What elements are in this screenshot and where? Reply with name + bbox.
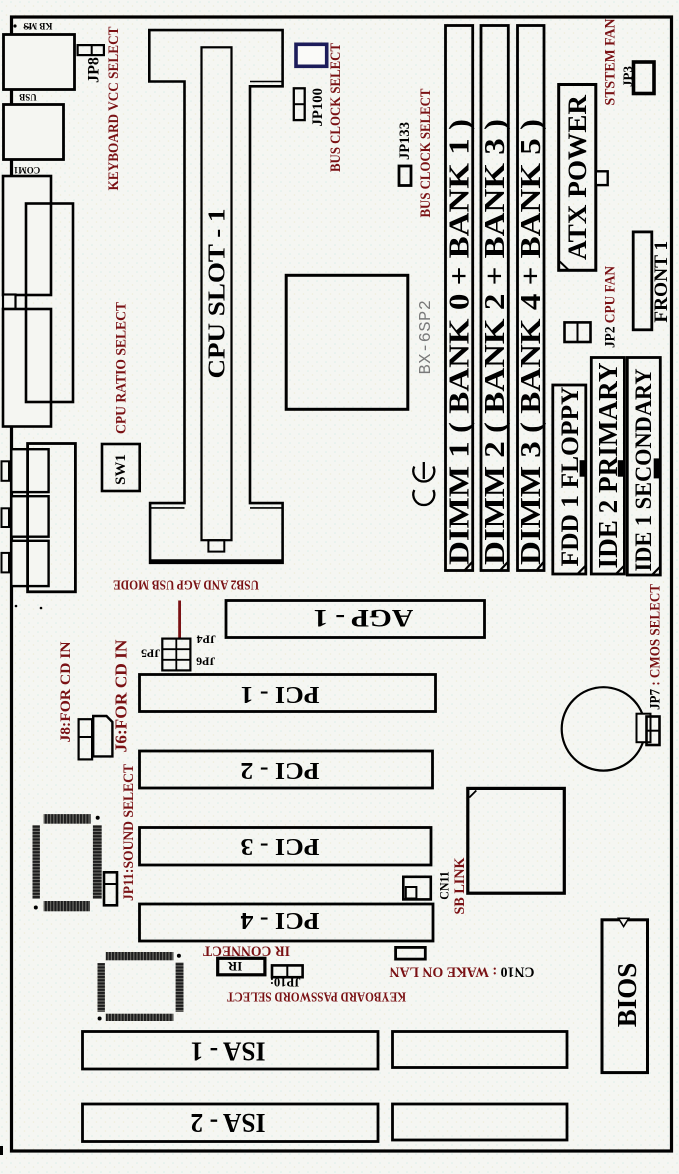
- svg-text:KB MS: KB MS: [24, 21, 53, 31]
- svg-text:ISA - 2: ISA - 2: [191, 1108, 266, 1138]
- svg-text:IDE 2 PRIMARY: IDE 2 PRIMARY: [593, 363, 623, 569]
- svg-text:JP8: JP8: [86, 57, 103, 83]
- svg-text:JP10:: JP10:: [270, 975, 301, 990]
- svg-text:AGP - 1: AGP - 1: [313, 604, 413, 633]
- svg-text:IR: IR: [227, 959, 242, 974]
- svg-text:JP4: JP4: [197, 633, 216, 647]
- svg-text:J8:FOR CD IN: J8:FOR CD IN: [58, 641, 74, 742]
- svg-text:JP100: JP100: [310, 88, 326, 127]
- svg-text:DIMM 3 ( BANK 4 + BANK 5 ): DIMM 3 ( BANK 4 + BANK 5 ): [515, 119, 547, 565]
- svg-text:CN11: CN11: [437, 871, 452, 900]
- svg-text:PCI - 3: PCI - 3: [241, 833, 320, 859]
- svg-text:BUS CLOCK SELECT: BUS CLOCK SELECT: [418, 89, 434, 218]
- svg-text:BIOS: BIOS: [612, 963, 642, 1028]
- svg-text:FDD 1 FLOPPY: FDD 1 FLOPPY: [555, 387, 584, 567]
- svg-text:JP5: JP5: [141, 646, 160, 660]
- svg-text:JP7 : CMOS SELECT: JP7 : CMOS SELECT: [648, 584, 664, 710]
- svg-text:JP133: JP133: [397, 122, 413, 160]
- svg-text:BX-6SP2: BX-6SP2: [417, 300, 436, 375]
- svg-text:CPU RATIO SELECT: CPU RATIO SELECT: [114, 302, 130, 434]
- svg-text:STSTEM FAN: STSTEM FAN: [603, 18, 619, 105]
- svg-text:JP6: JP6: [196, 655, 215, 669]
- svg-text:SW1: SW1: [113, 454, 129, 485]
- svg-text:J6:FOR CD IN: J6:FOR CD IN: [112, 639, 131, 753]
- svg-text:IR CONNECT: IR CONNECT: [203, 942, 290, 958]
- svg-text:SB LINK: SB LINK: [452, 857, 468, 915]
- svg-text:PCI - 2: PCI - 2: [241, 757, 320, 783]
- svg-text:FRONT 1: FRONT 1: [651, 241, 672, 323]
- svg-text:IDE 1 SECONDARY: IDE 1 SECONDARY: [631, 368, 657, 571]
- svg-text:KEYBOARD PASSWORD SELECT: KEYBOARD PASSWORD SELECT: [227, 989, 406, 1004]
- svg-text:PCI - 1: PCI - 1: [241, 681, 320, 707]
- svg-text:PCI - 4: PCI - 4: [241, 907, 320, 933]
- svg-text:DIMM 1 ( BANK 0 + BANK 1 ): DIMM 1 ( BANK 0 + BANK 1 ): [443, 119, 475, 565]
- svg-text:CN10 : WAKE ON LAN: CN10 : WAKE ON LAN: [389, 964, 535, 980]
- svg-text:DIMM 2 ( BANK 2 + BANK 3 ): DIMM 2 ( BANK 2 + BANK 3 ): [479, 119, 511, 565]
- svg-text:USB: USB: [19, 92, 37, 102]
- svg-text:JP2 CPU FAN: JP2 CPU FAN: [602, 266, 618, 348]
- svg-text:CPU SLOT - 1: CPU SLOT - 1: [203, 209, 230, 379]
- svg-text:COM1: COM1: [13, 165, 40, 175]
- svg-text:BUS CLOCK SELECT: BUS CLOCK SELECT: [328, 43, 344, 172]
- svg-text:JP11:SOUND SELECT: JP11:SOUND SELECT: [121, 764, 137, 901]
- svg-text:USB2 AND AGP USB MODE: USB2 AND AGP USB MODE: [113, 578, 259, 593]
- svg-text:ISA - 1: ISA - 1: [191, 1036, 266, 1066]
- svg-text:KEYBOARD VCC SELECT: KEYBOARD VCC SELECT: [106, 27, 122, 191]
- svg-text:ATX POWER: ATX POWER: [563, 95, 592, 260]
